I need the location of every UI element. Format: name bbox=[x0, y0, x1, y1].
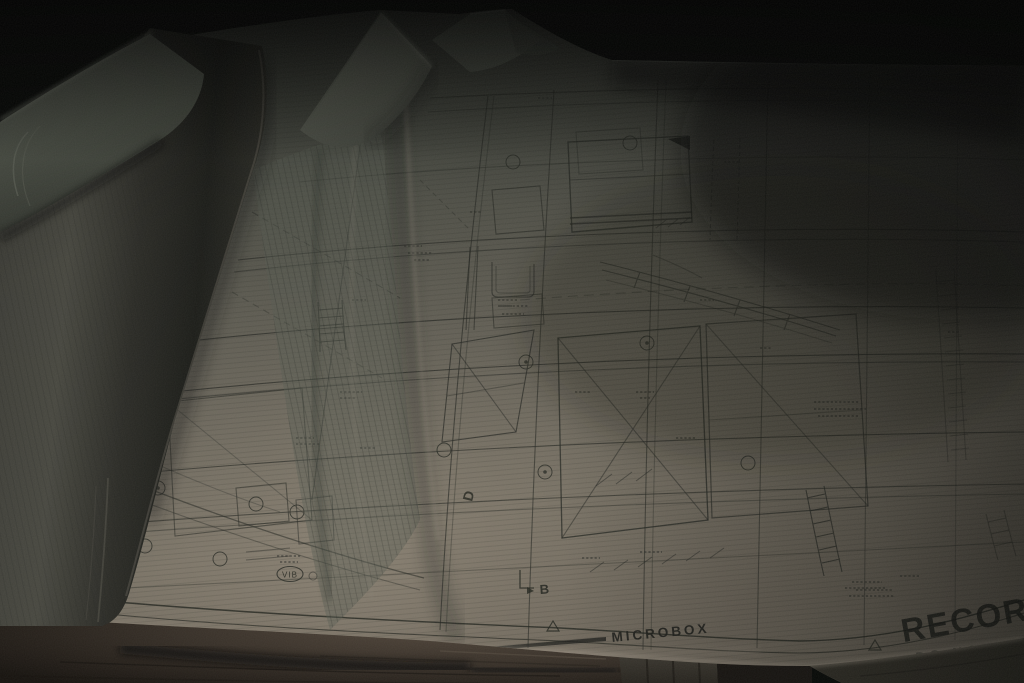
film-grain bbox=[0, 0, 1024, 683]
lighting bbox=[0, 0, 1024, 683]
photo-scene: MICROBOX RECORDED DO NOT SCALE VIB B D bbox=[0, 0, 1024, 683]
scene-svg: MICROBOX RECORDED DO NOT SCALE VIB B D bbox=[0, 0, 1024, 683]
